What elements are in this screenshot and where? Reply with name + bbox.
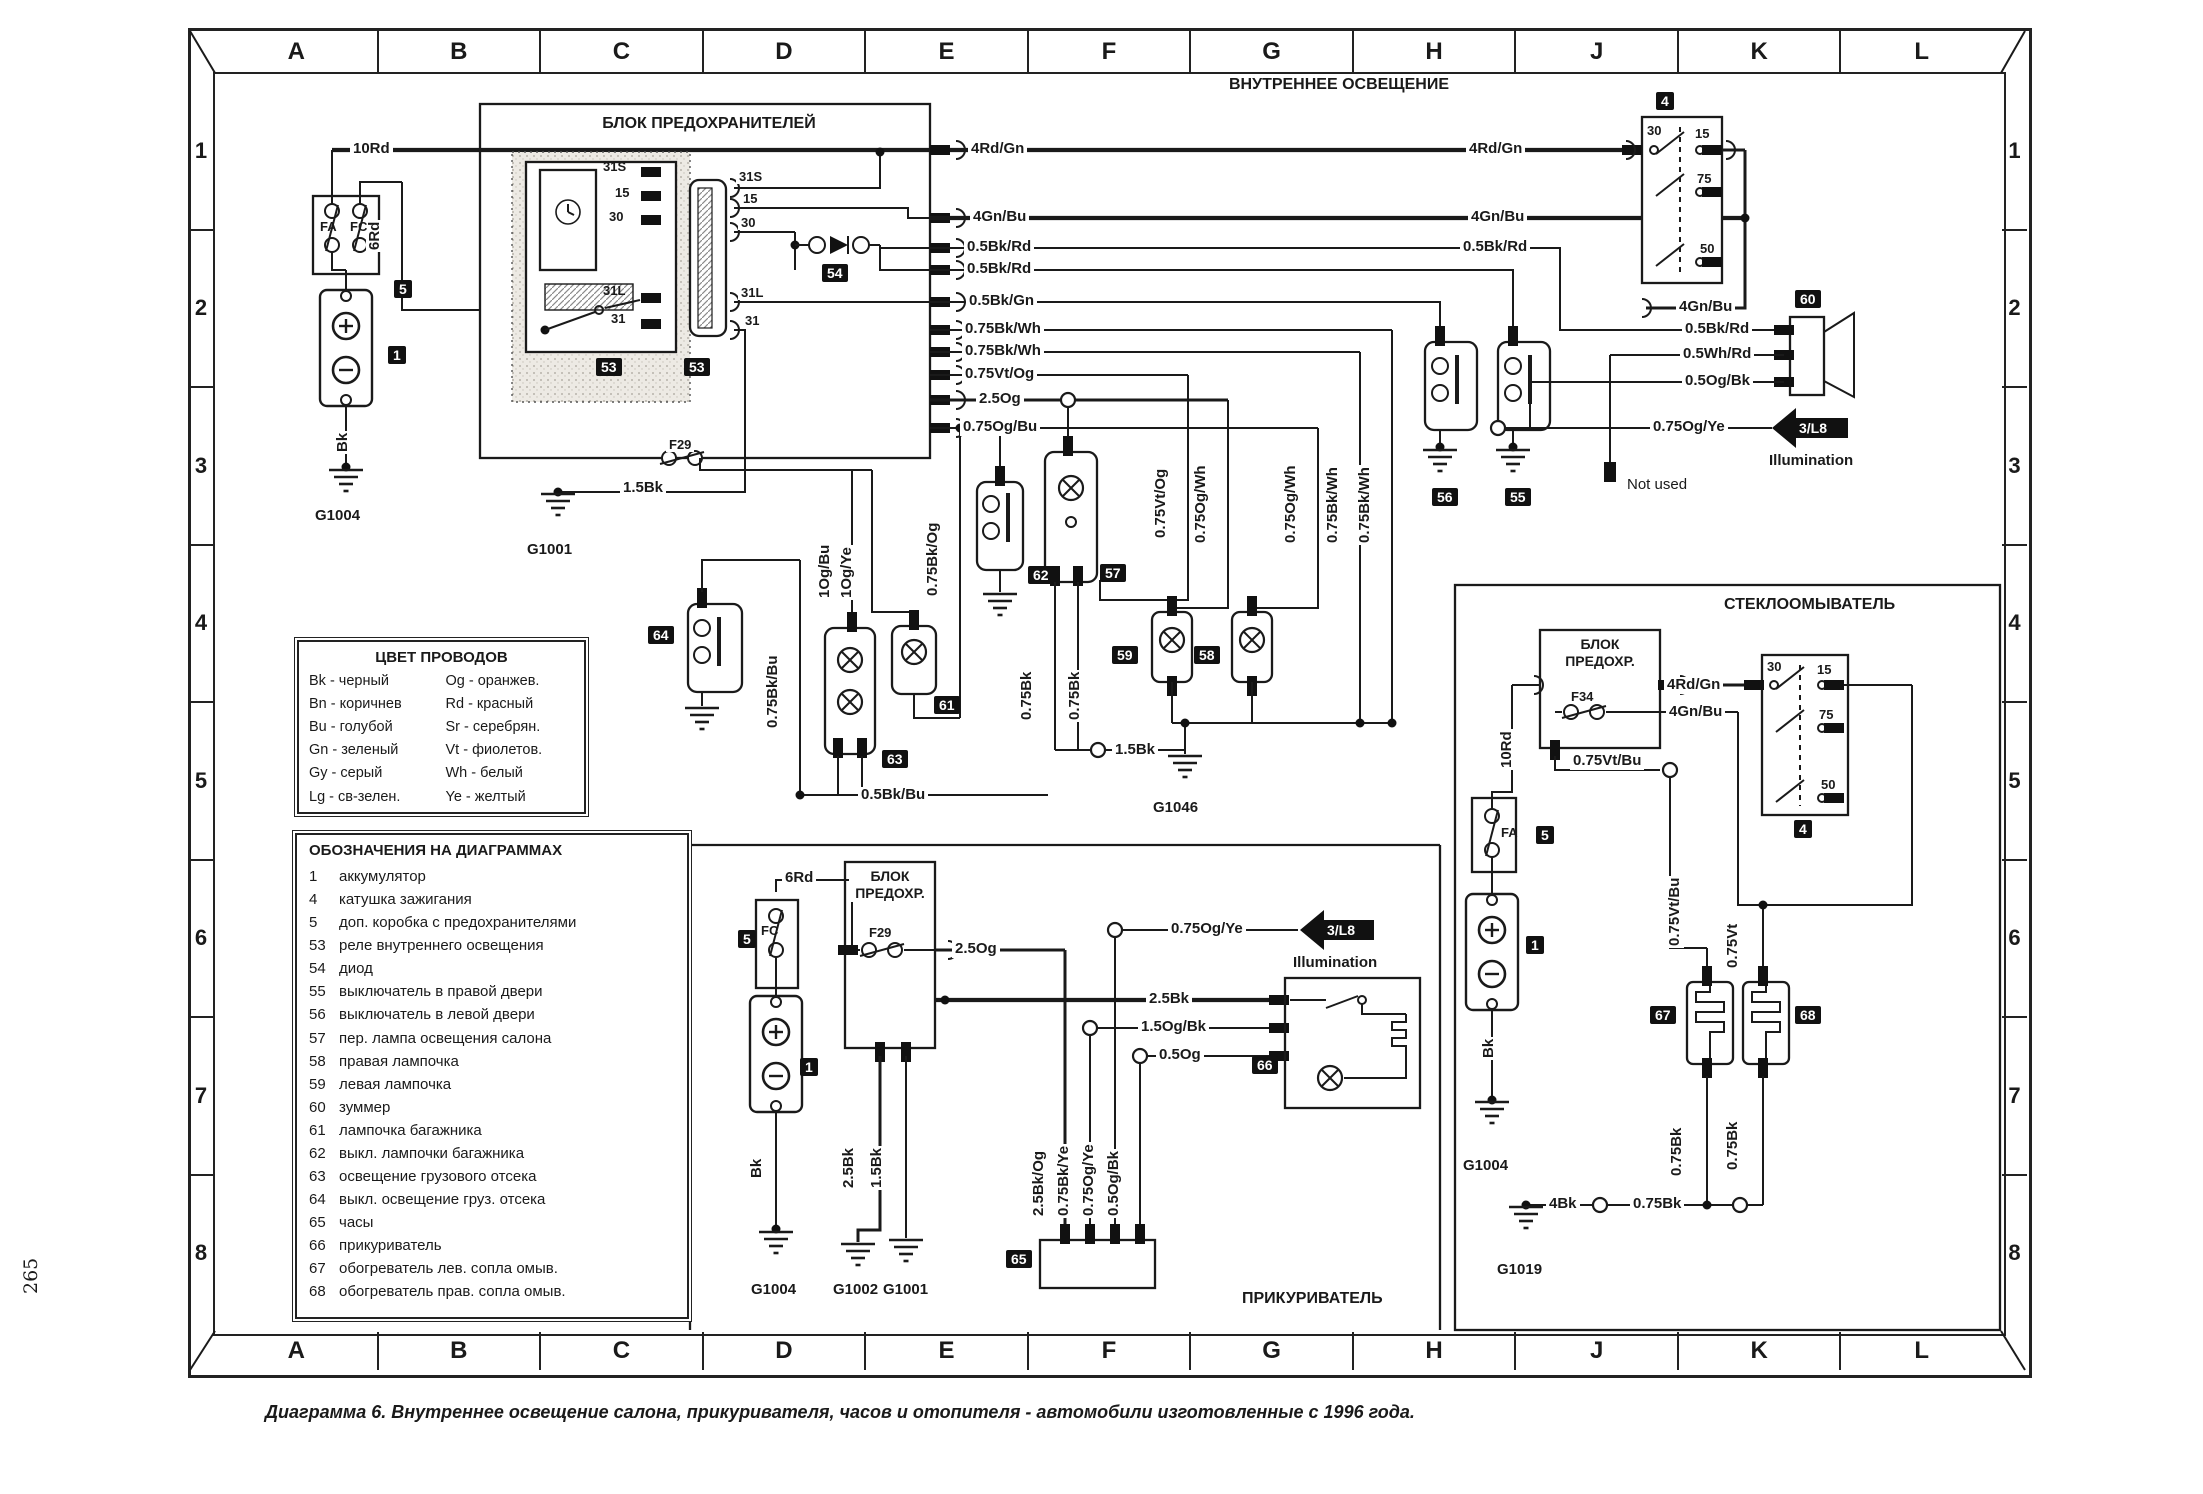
block-output-pads — [930, 141, 965, 437]
wire-label: 0.75Bk — [1630, 1196, 1684, 1213]
wire-label: 0.5Og/Bk — [1105, 1149, 1123, 1218]
wire-label: 0.75Vt/Bu — [1570, 753, 1644, 770]
symbol-entry: 63освещение грузового отсека — [309, 1168, 679, 1186]
component-tag: 64 — [648, 626, 674, 644]
diagram-symbols-legend: ОБОЗНАЧЕНИЯ НА ДИАГРАММАХ 1аккумулятор4к… — [295, 833, 689, 1319]
illumination-label: Illumination — [1290, 955, 1380, 972]
ground-G1001b — [889, 1240, 923, 1261]
terminal-label: 30 — [606, 210, 626, 224]
symbol-entry: 4катушка зажигания — [309, 891, 679, 909]
wire-label: 0.5Bk/Rd — [964, 261, 1034, 278]
terminal-label: 31L — [738, 286, 766, 300]
symbol-entry: 62выкл. лампочки багажника — [309, 1145, 679, 1163]
clock-65 — [1040, 1240, 1155, 1288]
wire-label: 0.75Bk/Wh — [962, 321, 1044, 338]
interior-section-title: ВНУТРЕННЕЕ ОСВЕЩЕНИЕ — [1225, 76, 1453, 94]
component-tag: 55 — [1505, 488, 1531, 506]
component-tag: 57 — [1100, 564, 1126, 582]
ground-G1046 — [1168, 756, 1202, 777]
wire-label: 0.75Bk — [1018, 670, 1036, 722]
symbol-entry: 64выкл. освещение груз. отсека — [309, 1191, 679, 1209]
diode-54 — [795, 236, 930, 270]
component-tag: 1 — [1526, 936, 1544, 954]
symbol-entry: 65часы — [309, 1214, 679, 1232]
scanned-wiring-diagram-page: ABCDEFGHJKL ABCDEFGHJKL 12345678 1234567… — [0, 0, 2203, 1494]
figure-caption: Диаграмма 6. Внутреннее освещение салона… — [265, 1402, 1885, 1423]
ground-G1004 — [329, 470, 363, 491]
battery-1b — [750, 996, 802, 1112]
component-tag: 4 — [1656, 92, 1674, 110]
wire-label: 0.75Bk — [1066, 670, 1084, 722]
terminal-label: 31S — [736, 170, 765, 184]
wire-label: 10Rd — [1498, 729, 1516, 770]
battery-1c — [1466, 894, 1518, 1010]
terminal-label: 31L — [600, 284, 628, 298]
ground-G1004c — [1475, 1102, 1509, 1123]
ground-G1004b — [759, 1232, 793, 1253]
wire-label: 0.75Bk/Bu — [764, 653, 782, 730]
wire-label: Bk — [748, 1157, 766, 1180]
component-tag: 5 — [394, 280, 412, 298]
terminal-label: 30 — [738, 216, 758, 230]
wire-label: 0.75Bk/Wh — [1324, 465, 1342, 545]
wire-label: 0.5Wh/Rd — [1680, 346, 1754, 363]
terminal-label: 50 — [1818, 778, 1838, 792]
component-tag: 5 — [1536, 826, 1554, 844]
wire-label: 0.75Vt/Og — [1152, 467, 1170, 540]
wire-label: 0.75Bk/Wh — [962, 343, 1044, 360]
wire-label: 6Rd — [782, 870, 816, 887]
wire-label: 0.5Bk/Rd — [964, 239, 1034, 256]
terminal-label: 31S — [600, 160, 629, 174]
symbol-entry: 57пер. лампа освещения салона — [309, 1030, 679, 1048]
ground-label: G1019 — [1494, 1262, 1545, 1279]
wire-label: 0.75Og/Ye — [1650, 419, 1728, 436]
wire-label: 0.75Vt — [1724, 922, 1742, 970]
symbol-entry: 61лампочка багажника — [309, 1122, 679, 1140]
terminal-label: 50 — [1697, 242, 1717, 256]
wire-label: 0.75Bk — [1724, 1120, 1742, 1172]
wire-label: 2.5Bk — [1146, 991, 1192, 1008]
color-entry: Rd - красный — [446, 696, 575, 713]
color-entry: Sr - серебрян. — [446, 719, 575, 736]
wire-label: 4Rd/Gn — [968, 141, 1027, 158]
wire-label: Bk — [334, 431, 352, 454]
fuse-label: FA — [1498, 826, 1521, 840]
symbol-entry: 56выключатель в левой двери — [309, 1006, 679, 1024]
wire-label: 0.5Bk/Rd — [1460, 239, 1530, 256]
terminal-label: 30 — [1644, 124, 1664, 138]
component-tag: 63 — [882, 750, 908, 768]
color-entry: Lg - св-зелен. — [309, 789, 438, 806]
component-tag: 61 — [934, 696, 960, 714]
terminal-label: 15 — [1692, 127, 1712, 141]
not-used-stub — [1604, 462, 1616, 482]
legend-title: ОБОЗНАЧЕНИЯ НА ДИАГРАММАХ — [309, 842, 683, 859]
fuse-block-title: БЛОК ПРЕДОХРАНИТЕЛЕЙ — [565, 115, 853, 133]
wire-label: 10Rd — [350, 141, 393, 158]
wire-label: 0.5Og/Bk — [1682, 373, 1753, 390]
wire-label: 2.5Og — [952, 941, 1000, 958]
component-tag: 1 — [800, 1058, 818, 1076]
wire-label: 0.75Vt/Og — [962, 366, 1037, 383]
wire-label: 2.5Bk/Og — [1030, 1149, 1048, 1218]
color-entry: Bn - коричнев — [309, 696, 438, 713]
fuse-block-small-title: БЛОКПРЕДОХР. — [1546, 636, 1654, 670]
wire-label: 0.5Bk/Bu — [858, 787, 928, 804]
page-number: 265 — [20, 1258, 42, 1294]
color-list-left: Bk - черныйBn - коричневBu - голубойGn -… — [309, 673, 438, 812]
right-door-switch-55 — [1498, 342, 1550, 430]
component-tag: 5 — [738, 930, 756, 948]
ground-G1002 — [841, 1244, 875, 1265]
wire-label: 0.75Vt/Bu — [1666, 876, 1684, 948]
ground-label: G1004 — [1460, 1158, 1511, 1175]
fuse-label: F34 — [1568, 690, 1596, 704]
terminal-label: 15 — [1814, 663, 1834, 677]
component-tag: 62 — [1028, 566, 1054, 584]
fuse-label: FC — [758, 924, 781, 938]
lighter-66 — [1285, 978, 1420, 1108]
wire-label: 4Gn/Bu — [1468, 209, 1527, 226]
wire-label: 1.5Bk — [868, 1146, 886, 1190]
wire-label: 1.5Bk — [1112, 742, 1158, 759]
wire-label: 1Og/Bu — [816, 543, 834, 600]
cigarette-lighter-circuit — [690, 845, 1440, 1330]
wire-label: 0.75Bk — [1668, 1126, 1686, 1178]
wire-color-legend: ЦВЕТ ПРОВОДОВ Bk - черныйBn - коричневBu… — [297, 640, 586, 814]
wire-label: 4Gn/Bu — [1676, 299, 1735, 316]
wire-label: 0.5Bk/Rd — [1682, 321, 1752, 338]
fuse-label: F29 — [666, 438, 694, 452]
symbol-entry: 58правая лампочка — [309, 1053, 679, 1071]
component-tag: 67 — [1650, 1006, 1676, 1024]
fuse-label: FA — [317, 220, 340, 234]
buzzer-60 — [1774, 313, 1854, 397]
wire-label: 2.5Bk — [840, 1146, 858, 1190]
color-entry: Ye - желтый — [446, 789, 575, 806]
wire-label: 0.5Bk/Gn — [966, 293, 1037, 310]
ground-label: G1001 — [524, 542, 575, 559]
wire-label: 0.75Bk/Wh — [1356, 465, 1374, 545]
left-door-switch-56 — [1425, 342, 1477, 430]
color-entry: Vt - фиолетов. — [446, 742, 575, 759]
wire-label: 0.75Og/Ye — [1080, 1142, 1098, 1218]
cargo-light-switch-64 — [688, 604, 742, 692]
terminal-label: 31 — [742, 314, 762, 328]
color-entry: Gy - серый — [309, 765, 438, 782]
component-tag: 54 — [822, 264, 848, 282]
terminal-label: 30 — [1764, 660, 1784, 674]
component-tag: 60 — [1795, 290, 1821, 308]
color-entry: Wh - белый — [446, 765, 575, 782]
ground-label: G1004 — [312, 508, 363, 525]
wire-label: 0.75Bk/Ye — [1055, 1144, 1073, 1218]
illumination-label: Illumination — [1766, 453, 1856, 470]
component-tag: 58 — [1194, 646, 1220, 664]
wire-label: 1.5Og/Bk — [1138, 1019, 1209, 1036]
component-tag: 65 — [1006, 1250, 1032, 1268]
wire-label: 0.75Og/Wh — [1282, 463, 1300, 545]
wire-label: 4Bk — [1546, 1196, 1580, 1213]
color-entry: Gn - зеленый — [309, 742, 438, 759]
lighter-section-title: ПРИКУРИВАТЕЛЬ — [1238, 1290, 1387, 1308]
wire-label: 1.5Bk — [620, 480, 666, 497]
symbol-entry: 1аккумулятор — [309, 868, 679, 886]
component-tag: 53 — [596, 358, 622, 376]
diagram-reference: 3/L8 — [1327, 923, 1355, 938]
symbol-list: 1аккумулятор4катушка зажигания5доп. коро… — [297, 864, 687, 1310]
ignition-switch-4 — [1622, 117, 1735, 283]
symbol-entry: 66прикуриватель — [309, 1237, 679, 1255]
terminal-label: 15 — [612, 186, 632, 200]
terminal-label: 75 — [1694, 172, 1714, 186]
wire-label: 2.5Og — [976, 391, 1024, 408]
fuse-label: F29 — [866, 926, 894, 940]
component-tag: 59 — [1112, 646, 1138, 664]
symbol-entry: 54диод — [309, 960, 679, 978]
terminal-label: 15 — [740, 192, 760, 206]
ground-label: G1004 — [748, 1282, 799, 1299]
component-tag: 56 — [1432, 488, 1458, 506]
fuse-block-small-title: БЛОКПРЕДОХР. — [849, 868, 931, 902]
wire-label: 4Rd/Gn — [1664, 677, 1723, 694]
ground-G1019 — [1509, 1207, 1543, 1228]
color-list-right: Og - оранжев.Rd - красныйSr - серебрян.V… — [446, 673, 575, 812]
fuse-F29b — [860, 943, 904, 957]
wire-label: 4Gn/Bu — [970, 209, 1029, 226]
diagram-reference: 3/L8 — [1799, 421, 1827, 436]
fuse-F34 — [1562, 705, 1606, 719]
symbol-entry: 60зуммер — [309, 1099, 679, 1117]
symbol-entry: 59левая лампочка — [309, 1076, 679, 1094]
color-entry: Bk - черный — [309, 673, 438, 690]
symbol-entry: 67обогреватель лев. сопла омыв. — [309, 1260, 679, 1278]
wire-label: 0.75Og/Bu — [960, 419, 1040, 436]
component-tag: 53 — [684, 358, 710, 376]
fuse-F29 — [660, 451, 704, 465]
legend-title: ЦВЕТ ПРОВОДОВ — [303, 649, 580, 666]
battery-1 — [320, 290, 372, 406]
component-tag: 4 — [1794, 820, 1812, 838]
ground-label: G1001 — [880, 1282, 931, 1299]
color-entry: Bu - голубой — [309, 719, 438, 736]
washer-section-title: СТЕКЛООМЫВАТЕЛЬ — [1720, 596, 1899, 614]
symbol-entry: 53реле внутреннего освещения — [309, 937, 679, 955]
terminal-label: 75 — [1816, 708, 1836, 722]
wire-label: 0.75Bk/Og — [924, 521, 942, 598]
wire-label: Bk — [1480, 1037, 1498, 1060]
symbol-entry: 55выключатель в правой двери — [309, 983, 679, 1001]
nozzle-heater-68 — [1743, 966, 1789, 1078]
ground-label: G1002 — [830, 1282, 881, 1299]
wire-label: 0.75Og/Ye — [1168, 921, 1246, 938]
wire-label: 0.75Og/Wh — [1192, 463, 1210, 545]
wire-label: 0.5Og — [1156, 1047, 1204, 1064]
wire-label: 1Og/Ye — [838, 545, 856, 600]
wire-label: 4Gn/Bu — [1666, 704, 1725, 721]
fuse-label: FC — [347, 220, 370, 234]
ground-G1001 — [541, 494, 575, 515]
component-tag: 1 — [388, 346, 406, 364]
component-tag: 66 — [1252, 1056, 1278, 1074]
nozzle-heater-67 — [1687, 966, 1733, 1078]
symbol-entry: 5доп. коробка с предохранителями — [309, 914, 679, 932]
fuse-FAb — [1485, 809, 1499, 857]
ground-label: G1046 — [1150, 800, 1201, 817]
component-tag: 68 — [1795, 1006, 1821, 1024]
not-used-label: Not used — [1624, 477, 1690, 494]
wire-label: 4Rd/Gn — [1466, 141, 1525, 158]
terminal-label: 31 — [608, 312, 628, 326]
color-entry: Og - оранжев. — [446, 673, 575, 690]
symbol-entry: 68обогреватель прав. сопла омыв. — [309, 1283, 679, 1301]
